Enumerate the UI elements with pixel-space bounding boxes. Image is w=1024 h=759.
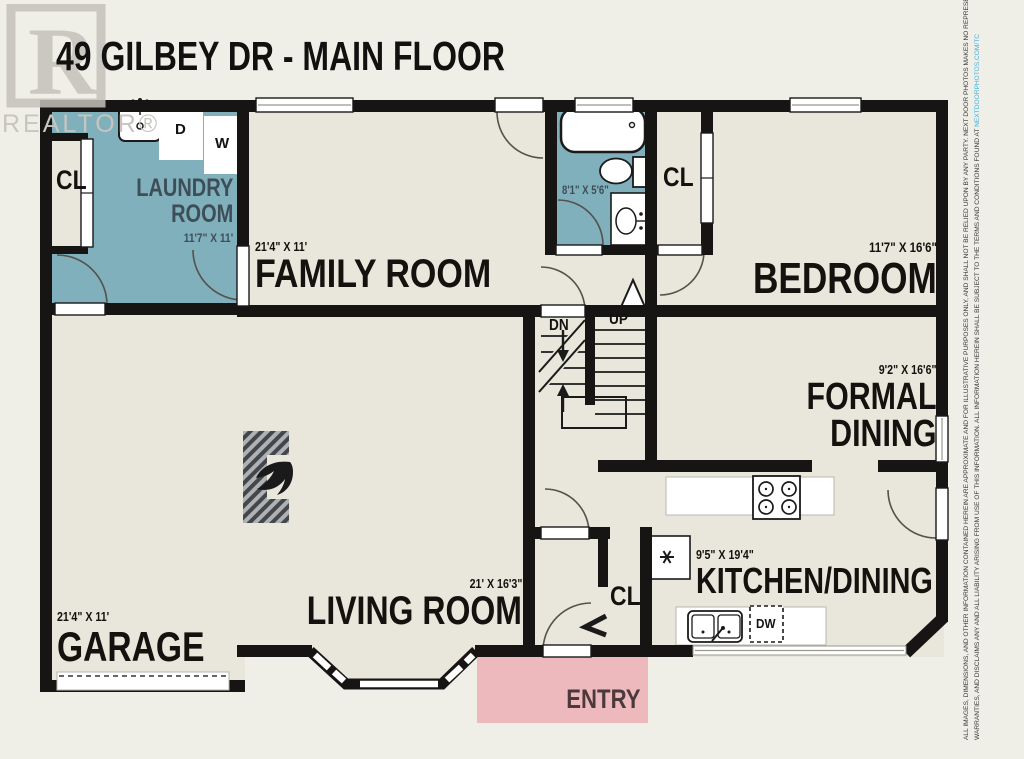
page-title: 49 GILBEY DR - MAIN FLOOR [56,33,505,80]
room-label-bedroom: BEDROOM [753,256,937,302]
room-label-entry: ENTRY [567,685,641,713]
disclaimer-text: ALL IMAGES, DIMENSIONS, AND OTHER INFORM… [961,100,985,740]
disclaimer-line1: ALL IMAGES, DIMENSIONS, AND OTHER INFORM… [961,100,972,740]
stairs-down-label: DN [549,318,569,335]
room-dims-laundry: 11'7" X 11' [184,232,233,244]
disclaimer-line2: WARRANTIES, AND DISCLAIMS ANY AND ALL LI… [972,100,983,740]
room-dims-bedroom: 11'7" X 16'6" [869,240,937,255]
bathroom-sink-icon [611,193,648,245]
entry-closet-label: CL [610,582,641,610]
terms-link: NEXTDOORPHOTOS.COM/TC [974,34,981,127]
room-label-living: LIVING ROOM [307,591,522,633]
room-label-family: FAMILY ROOM [255,254,491,296]
stairs-up-label: UP [609,312,628,329]
bathtub-icon [561,108,645,152]
room-label-formal-dining: FORMAL DINING [807,379,937,453]
room-label-laundry: LAUNDRY ROOM [136,175,233,227]
room-label-garage: GARAGE [57,625,204,669]
bathroom-closet-label: CL [663,163,694,191]
dryer-label: D [175,122,186,138]
room-dims-formal-dining: 9'2" X 16'6" [879,363,937,377]
washer-label: W [215,136,229,152]
laundry-closet-label: CL [56,166,87,194]
floor-plan-page: { "title": "49 GILBEY DR - MAIN FLOOR", … [0,0,1024,759]
realtor-watermark-label: REALTOR® [2,110,160,139]
room-dims-garage: 21'4" X 11' [57,610,109,624]
garage-door [57,672,229,690]
room-dims-bathroom: 8'1" X 5'6" [562,184,609,196]
fridge-icon [646,536,690,579]
kitchen-sink-icon [688,611,742,642]
room-label-kitchen: KITCHEN/DINING [696,562,933,599]
kitchen-rear-window [693,646,906,655]
stove-icon [753,476,800,519]
dishwasher-label: DW [756,617,776,631]
